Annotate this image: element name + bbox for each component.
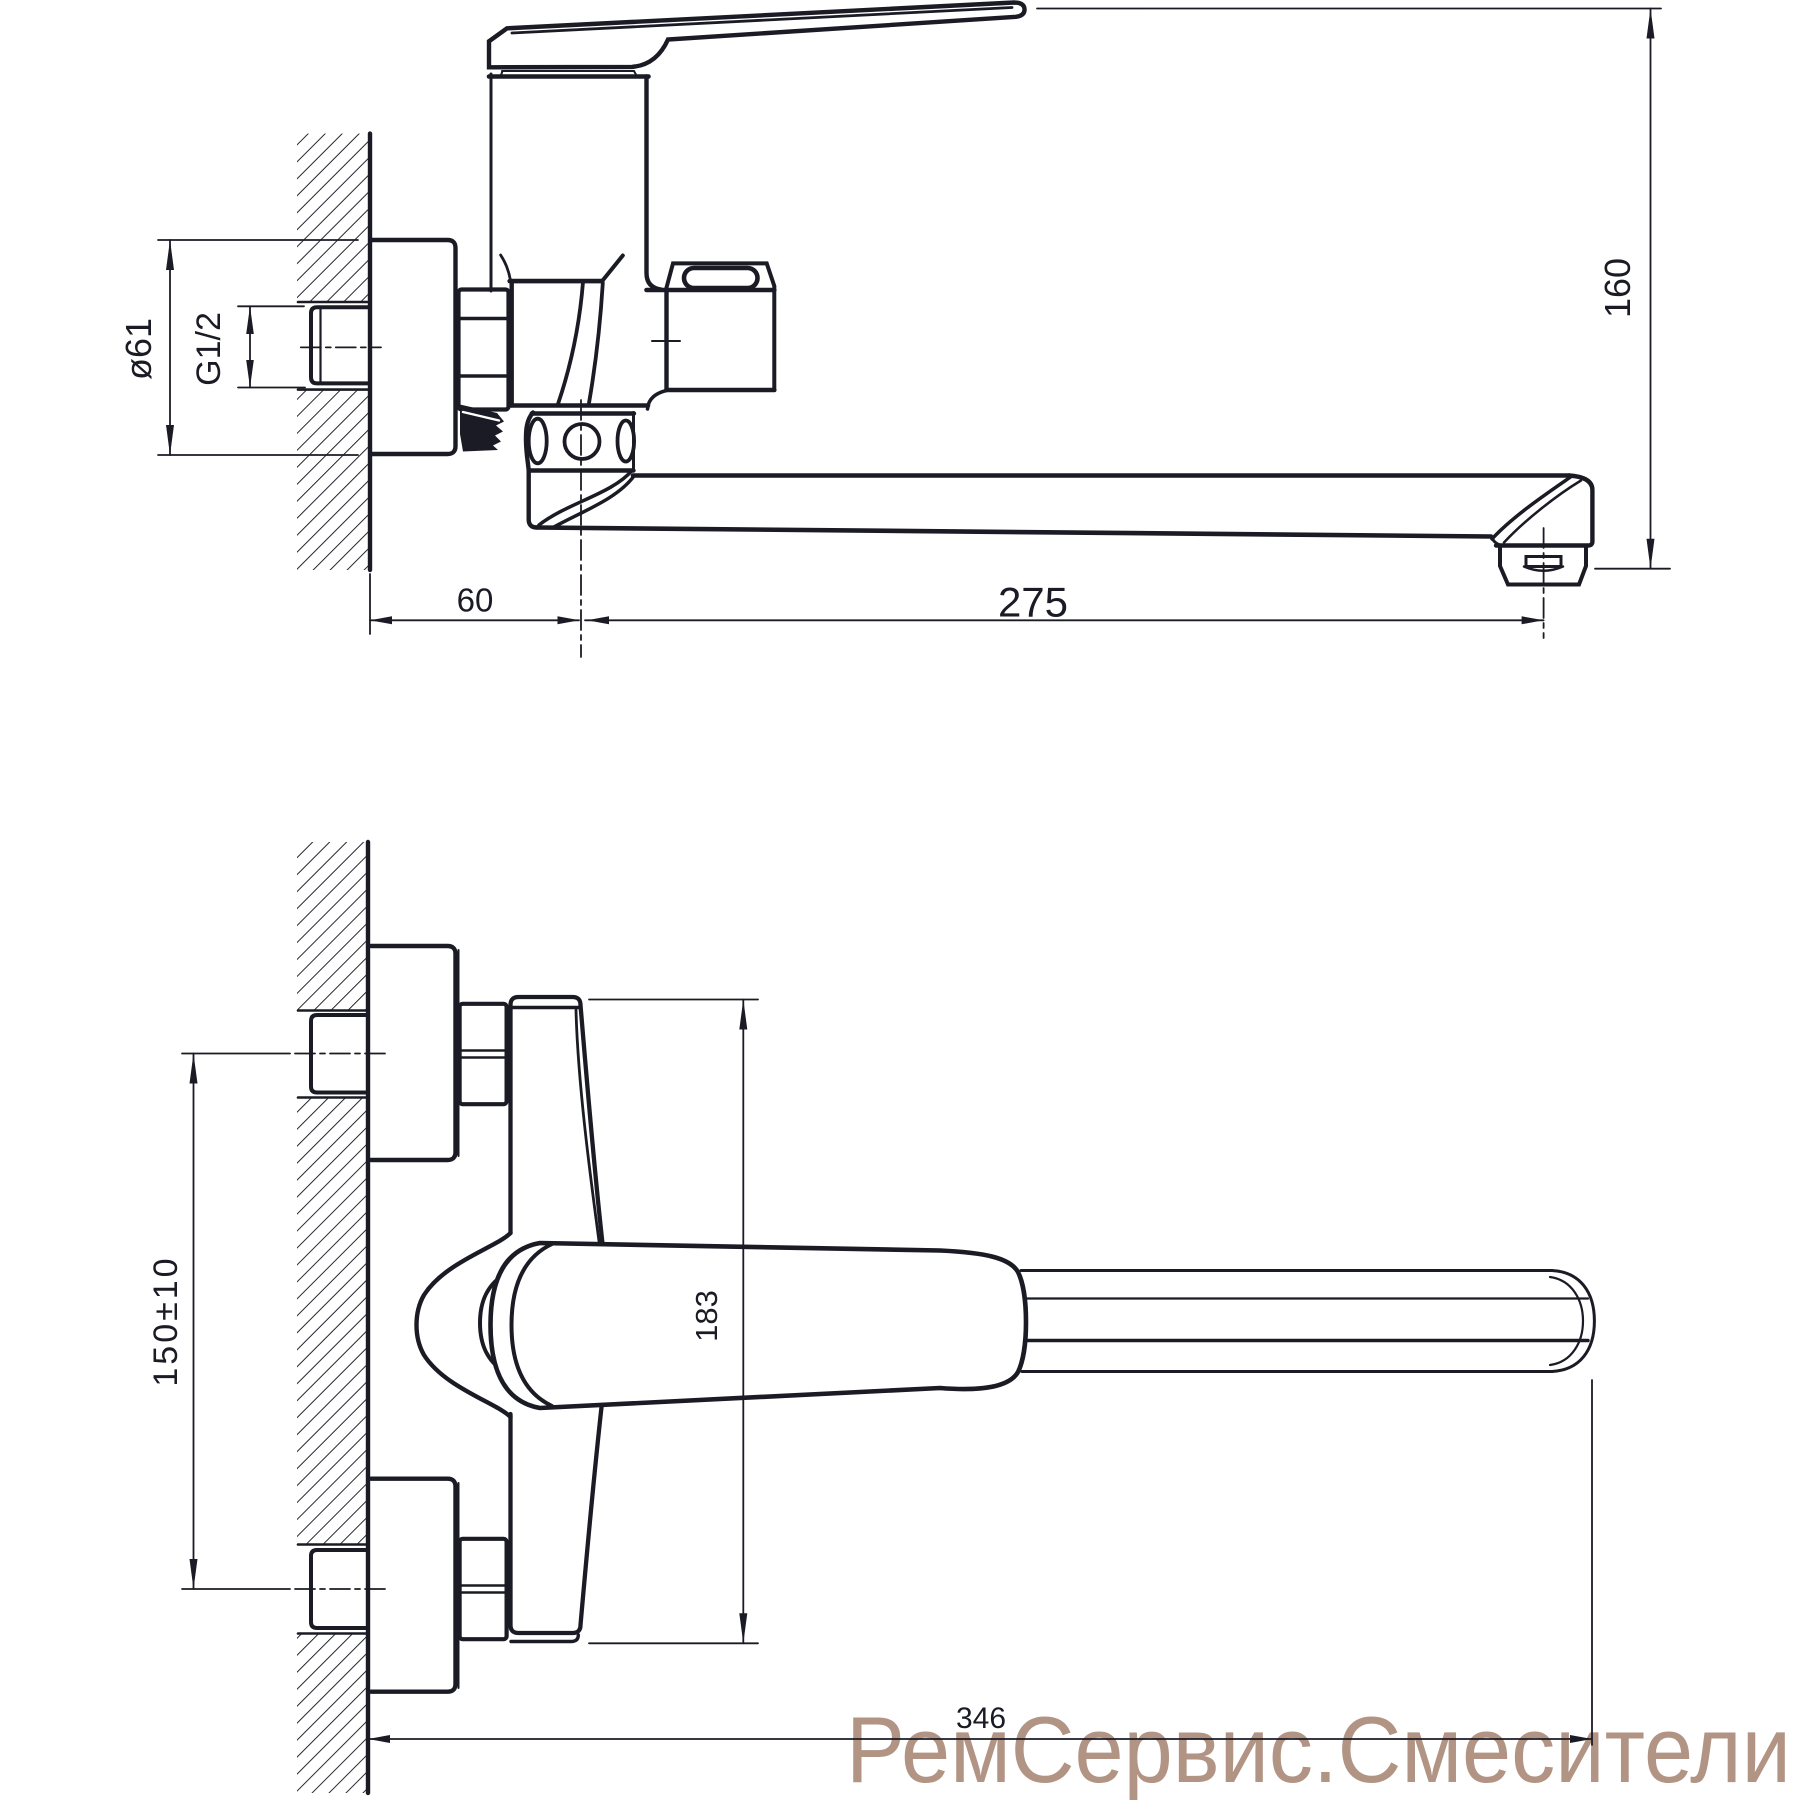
svg-text:G1/2: G1/2	[190, 312, 228, 386]
svg-text:60: 60	[457, 582, 494, 619]
svg-text:275: 275	[998, 579, 1068, 626]
svg-text:160: 160	[1597, 258, 1638, 318]
svg-text:ø61: ø61	[118, 318, 159, 380]
svg-text:150±10: 150±10	[147, 1255, 185, 1386]
svg-text:183: 183	[689, 1290, 724, 1342]
svg-text:346: 346	[956, 1702, 1006, 1735]
